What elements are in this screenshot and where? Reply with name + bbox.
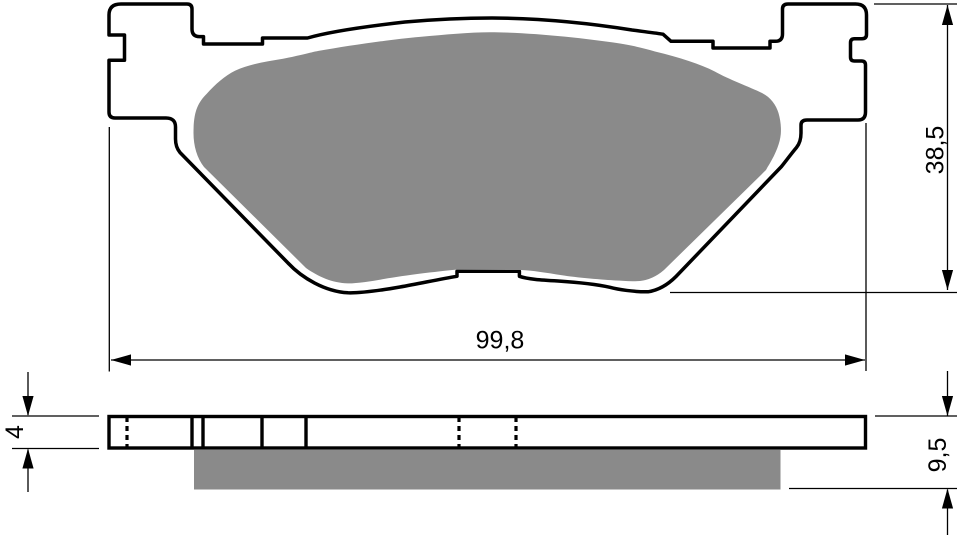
svg-text:9,5: 9,5 xyxy=(924,438,952,473)
svg-text:99,8: 99,8 xyxy=(476,327,525,355)
svg-text:38,5: 38,5 xyxy=(922,126,950,175)
svg-text:4: 4 xyxy=(1,425,29,439)
